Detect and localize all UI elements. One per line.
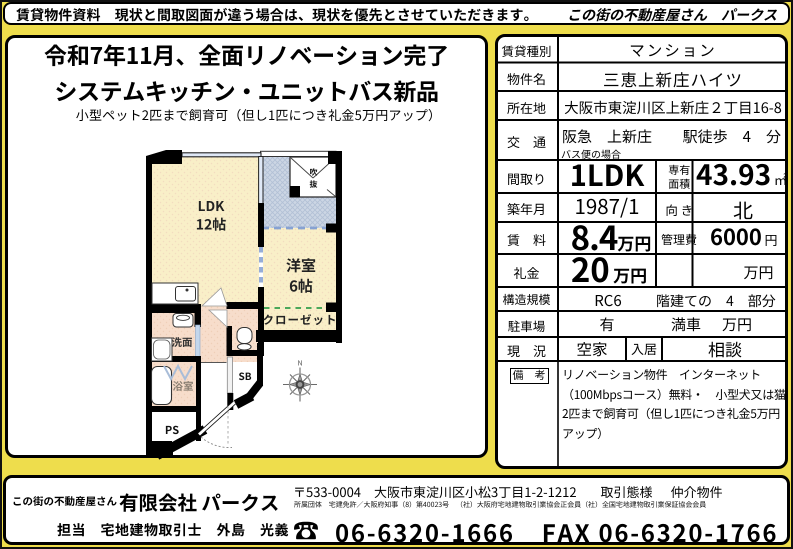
svg-text:PS: PS [165, 422, 179, 438]
svg-text:N: N [297, 359, 302, 369]
svg-text:抜: 抜 [310, 179, 318, 190]
svg-text:6帖: 6帖 [289, 276, 313, 297]
svg-text:洗面: 洗面 [172, 335, 193, 350]
svg-text:12帖: 12帖 [196, 215, 227, 235]
svg-text:浴室: 浴室 [173, 379, 194, 394]
svg-text:SB: SB [238, 368, 251, 383]
svg-text:洋室: 洋室 [286, 255, 316, 276]
svg-text:LDK: LDK [198, 195, 225, 215]
svg-text:吹: 吹 [310, 167, 318, 178]
svg-text:クローゼット: クローゼット [263, 312, 338, 328]
